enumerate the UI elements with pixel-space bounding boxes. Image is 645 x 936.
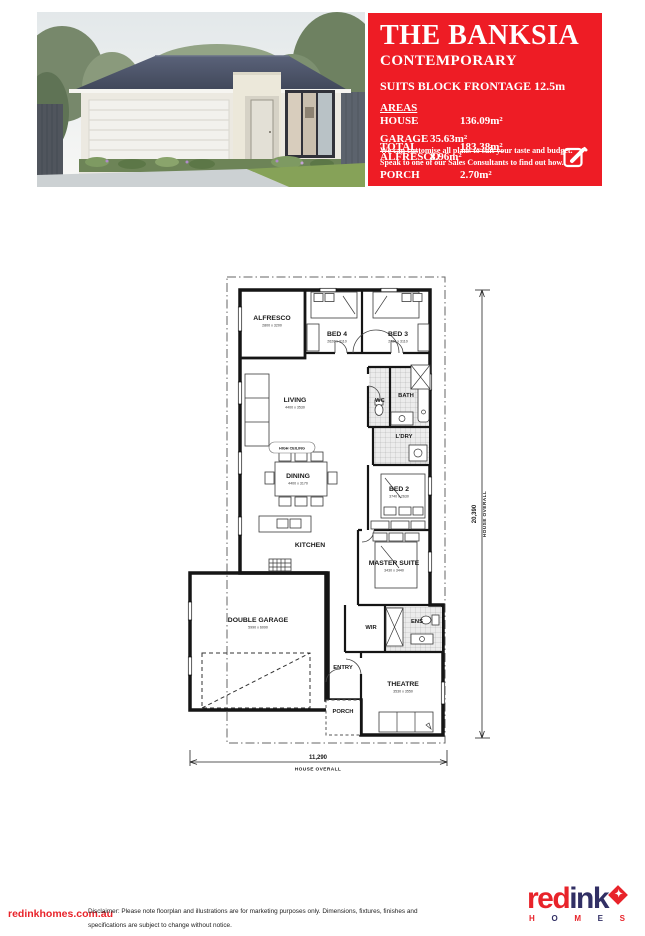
svg-text:2620 x 3110: 2620 x 3110 xyxy=(327,340,347,344)
logo-ink-text: ink xyxy=(569,882,608,915)
info-panel: THE BANKSIA CONTEMPORARY SUITS BLOCK FRO… xyxy=(368,13,602,186)
furniture xyxy=(202,292,439,732)
room-label-bed4: BED 4 xyxy=(327,331,347,338)
floor-plan: HIGH CEILING ALFRESCO 2800 x 3200 BED 4 … xyxy=(185,262,500,782)
logo-red-text: red xyxy=(527,882,569,915)
svg-text:4400 x 3530: 4400 x 3530 xyxy=(285,406,305,410)
logo-wordmark: redink✦ xyxy=(527,884,639,914)
svg-text:3740 x 2630: 3740 x 2630 xyxy=(389,495,409,499)
room-label-bed3: BED 3 xyxy=(388,331,408,338)
svg-text:4400 x 3170: 4400 x 3170 xyxy=(288,482,308,486)
total-area: TOTAL 183.38m² We can customise all plan… xyxy=(380,140,590,174)
design-title: THE BANKSIA xyxy=(380,22,590,50)
svg-text:3430 x 3440: 3430 x 3440 xyxy=(384,569,404,573)
room-label-garage: DOUBLE GARAGE xyxy=(228,617,289,624)
redink-logo: redink✦ H O M E S xyxy=(527,884,639,923)
height-dimension: 20,390 xyxy=(472,504,478,523)
disclaimer-line1: Disclaimer: Please note floorplan and il… xyxy=(88,905,440,933)
high-ceiling-label: HIGH CEILING xyxy=(279,447,305,451)
front-window xyxy=(285,90,335,158)
svg-text:3530 x 3550: 3530 x 3550 xyxy=(393,690,413,694)
room-label-wc: WC xyxy=(375,398,385,404)
area-row-house: HOUSE 136.09m² xyxy=(380,115,590,132)
area-value: 136.09m² xyxy=(460,115,503,127)
areas-heading: AREAS xyxy=(380,102,590,114)
room-label-ens: ENS xyxy=(411,619,423,625)
porch-outline xyxy=(326,700,361,735)
room-label-theatre: THEATRE xyxy=(387,681,419,688)
room-label-ldry: L'DRY xyxy=(396,434,413,440)
customise-note: We can customise all plans to suit your … xyxy=(380,145,573,170)
svg-text:2720 x 3110: 2720 x 3110 xyxy=(388,340,408,344)
room-label-entry: ENTRY xyxy=(333,665,353,671)
customise-line1: We can customise all plans to suit your … xyxy=(380,145,573,157)
entry-portico xyxy=(233,72,281,162)
design-style: CONTEMPORARY xyxy=(380,53,590,70)
brochure-page: THE BANKSIA CONTEMPORARY SUITS BLOCK FRO… xyxy=(0,0,645,936)
area-label: HOUSE xyxy=(380,115,419,127)
edit-icon[interactable] xyxy=(562,144,588,170)
block-frontage: SUITS BLOCK FRONTAGE 12.5m xyxy=(380,79,590,94)
room-label-wir: WIR xyxy=(365,625,377,631)
room-label-porch: PORCH xyxy=(333,709,354,715)
disclaimer: Disclaimer: Please note floorplan and il… xyxy=(88,905,440,936)
width-dimension: 11,290 xyxy=(309,755,328,761)
front-door xyxy=(251,100,273,160)
room-label-bed2: BED 2 xyxy=(389,486,409,493)
svg-text:2800 x 3200: 2800 x 3200 xyxy=(262,324,282,328)
diamond-star-icon: ✦ xyxy=(608,885,628,905)
width-dimension-label: HOUSE OVERALL xyxy=(295,767,342,773)
room-label-dining: DINING xyxy=(286,473,310,480)
room-label-kitchen: KITCHEN xyxy=(295,542,325,549)
svg-text:5990 x 6090: 5990 x 6090 xyxy=(248,626,268,630)
garage-door xyxy=(89,100,229,162)
height-dimension-label: HOUSE OVERALL xyxy=(482,491,488,538)
room-label-alfresco: ALFRESCO xyxy=(253,315,290,322)
customise-line2: Speak to one of our Sales Consultants to… xyxy=(380,157,573,169)
house-render-photo xyxy=(37,12,365,187)
room-label-living: LIVING xyxy=(284,397,307,404)
room-label-bath: BATH xyxy=(398,393,414,399)
room-label-master: MASTER SUITE xyxy=(369,560,420,567)
garage-outline xyxy=(190,573,328,710)
logo-homes-letters: H O M E S xyxy=(529,914,625,923)
